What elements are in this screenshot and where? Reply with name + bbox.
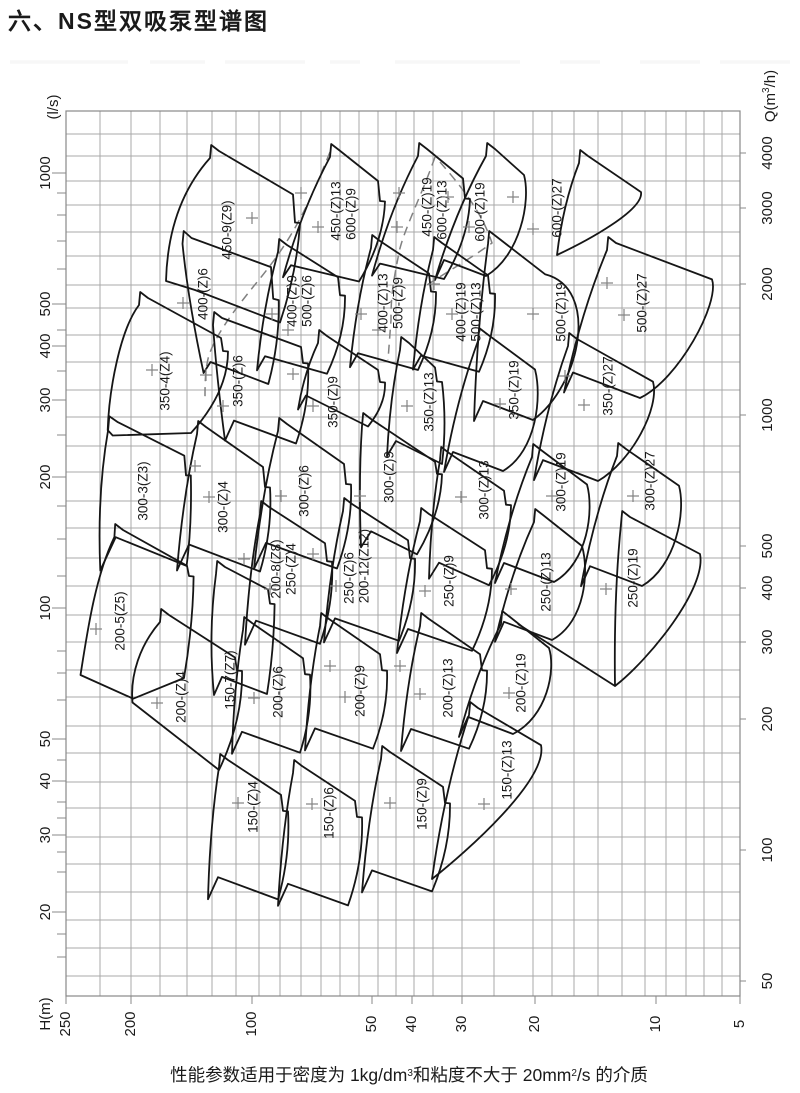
svg-text:500: 500 — [759, 533, 776, 558]
svg-text:350-4(Z4): 350-4(Z4) — [158, 351, 173, 410]
svg-text:50: 50 — [363, 1016, 380, 1033]
svg-text:300-(Z)27: 300-(Z)27 — [643, 451, 658, 510]
svg-text:六、NS型双吸泵型谱图: 六、NS型双吸泵型谱图 — [8, 8, 269, 34]
svg-text:20: 20 — [37, 904, 54, 921]
svg-text:2000: 2000 — [759, 267, 776, 300]
svg-text:1000: 1000 — [759, 398, 776, 431]
svg-text:30: 30 — [37, 827, 54, 844]
svg-text:400-(Z)9: 400-(Z)9 — [285, 275, 300, 327]
svg-text:250: 250 — [57, 1011, 74, 1036]
svg-text:250-(Z)13: 250-(Z)13 — [539, 552, 554, 611]
svg-text:600-(Z)19: 600-(Z)19 — [473, 182, 488, 241]
svg-text:350-(Z)19: 350-(Z)19 — [507, 360, 522, 419]
svg-text:500: 500 — [37, 291, 54, 316]
svg-text:1000: 1000 — [37, 156, 54, 189]
svg-text:250-(Z)4: 250-(Z)4 — [284, 543, 299, 595]
svg-text:200: 200 — [122, 1011, 139, 1036]
svg-text:350-(Z)9: 350-(Z)9 — [326, 376, 341, 428]
svg-text:200: 200 — [37, 464, 54, 489]
svg-text:250-(Z)6: 250-(Z)6 — [342, 552, 357, 604]
svg-text:400-(Z)19: 400-(Z)19 — [454, 282, 469, 341]
svg-text:30: 30 — [453, 1016, 470, 1033]
svg-text:200-8(Z8): 200-8(Z8) — [269, 539, 284, 598]
svg-text:H(m): H(m) — [37, 997, 54, 1030]
svg-text:200: 200 — [759, 706, 776, 731]
svg-text:250-(Z)19: 250-(Z)19 — [626, 548, 641, 607]
svg-text:Q(m3/h): Q(m3/h) — [761, 70, 779, 122]
svg-text:500-(Z)6: 500-(Z)6 — [300, 275, 315, 327]
svg-text:300-(Z)19: 300-(Z)19 — [554, 452, 569, 511]
svg-text:500-(Z)19: 500-(Z)19 — [554, 282, 569, 341]
svg-text:4000: 4000 — [759, 136, 776, 169]
svg-text:300-(Z)13: 300-(Z)13 — [477, 460, 492, 519]
svg-text:500-(Z)27: 500-(Z)27 — [635, 273, 650, 332]
svg-text:200-(Z)9: 200-(Z)9 — [353, 665, 368, 717]
svg-text:600-(Z)9: 600-(Z)9 — [344, 188, 359, 240]
svg-text:50: 50 — [37, 731, 54, 748]
svg-text:300: 300 — [759, 629, 776, 654]
svg-text:450-(Z)13: 450-(Z)13 — [329, 181, 344, 240]
svg-text:350-(Z)6: 350-(Z)6 — [231, 355, 246, 407]
svg-text:200-(Z)19: 200-(Z)19 — [514, 653, 529, 712]
svg-text:200-(Z)6: 200-(Z)6 — [271, 666, 286, 718]
svg-text:400: 400 — [759, 575, 776, 600]
svg-text:300: 300 — [37, 387, 54, 412]
svg-text:500-(Z)9: 500-(Z)9 — [391, 277, 406, 329]
svg-text:350-(Z)27: 350-(Z)27 — [601, 356, 616, 415]
svg-text:450-9(Z9): 450-9(Z9) — [220, 200, 235, 259]
svg-text:200-(Z)4: 200-(Z)4 — [174, 671, 189, 723]
svg-text:500-(Z)13: 500-(Z)13 — [469, 282, 484, 341]
svg-text:400-(Z)13: 400-(Z)13 — [376, 273, 391, 332]
svg-text:20: 20 — [526, 1016, 543, 1033]
svg-text:300-(Z)4: 300-(Z)4 — [216, 481, 231, 533]
svg-text:300-3(Z3): 300-3(Z3) — [136, 461, 151, 520]
svg-text:40: 40 — [37, 773, 54, 790]
svg-text:250-(Z)9: 250-(Z)9 — [442, 555, 457, 607]
svg-text:5: 5 — [731, 1020, 748, 1028]
svg-text:(l/s): (l/s) — [45, 95, 62, 120]
svg-text:200-5(Z5): 200-5(Z5) — [113, 591, 128, 650]
svg-text:450-(Z)19: 450-(Z)19 — [420, 177, 435, 236]
svg-text:150-(Z)13: 150-(Z)13 — [500, 740, 515, 799]
svg-text:350-(Z)13: 350-(Z)13 — [422, 372, 437, 431]
svg-text:400-(Z)6: 400-(Z)6 — [196, 268, 211, 320]
svg-text:200-12(Z12): 200-12(Z12) — [357, 529, 372, 603]
svg-text:100: 100 — [37, 595, 54, 620]
svg-text:10: 10 — [647, 1016, 664, 1033]
svg-text:400: 400 — [37, 333, 54, 358]
svg-text:100: 100 — [243, 1011, 260, 1036]
svg-text:150-7(Z7): 150-7(Z7) — [223, 650, 238, 709]
svg-text:50: 50 — [759, 973, 776, 990]
svg-text:300-(Z)9: 300-(Z)9 — [382, 451, 397, 503]
svg-text:3000: 3000 — [759, 191, 776, 224]
svg-text:100: 100 — [759, 837, 776, 862]
svg-text:200-(Z)13: 200-(Z)13 — [441, 658, 456, 717]
svg-text:150-(Z)4: 150-(Z)4 — [246, 781, 261, 833]
svg-text:40: 40 — [403, 1016, 420, 1033]
svg-text:600-(Z)13: 600-(Z)13 — [435, 180, 450, 239]
svg-text:150-(Z)6: 150-(Z)6 — [322, 787, 337, 839]
svg-text:600-(Z)27: 600-(Z)27 — [550, 178, 565, 237]
svg-text:150-(Z)9: 150-(Z)9 — [415, 778, 430, 830]
svg-text:300-(Z)6: 300-(Z)6 — [297, 465, 312, 517]
